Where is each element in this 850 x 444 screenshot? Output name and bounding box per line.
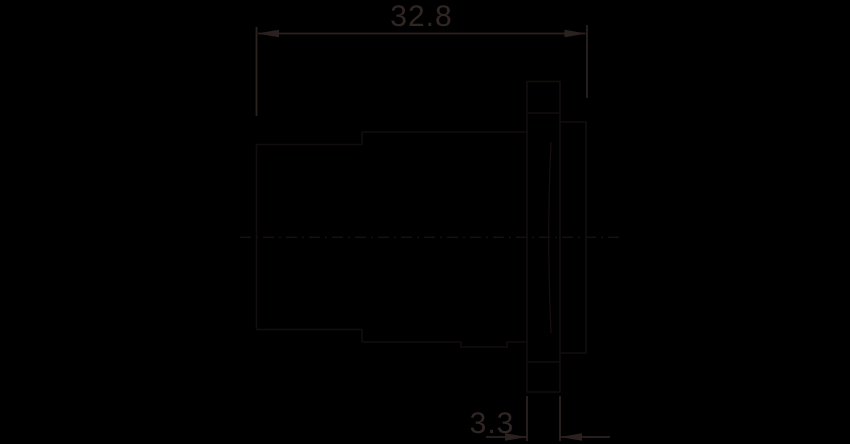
arrowhead-right-icon	[565, 30, 587, 37]
arrowhead-left-icon	[257, 30, 279, 37]
technical-drawing: 32.8 3.3	[0, 0, 850, 444]
dimension-flange-thickness: 3.3	[470, 396, 610, 441]
dimension-overall-length: 32.8	[257, 0, 588, 116]
drawing-canvas: 32.8 3.3	[0, 0, 850, 444]
arrowhead-left-pointing-icon	[560, 433, 582, 440]
flange-thickness-label: 3.3	[470, 407, 515, 440]
overall-length-label: 32.8	[390, 0, 452, 33]
middle-body-outline	[362, 132, 527, 347]
